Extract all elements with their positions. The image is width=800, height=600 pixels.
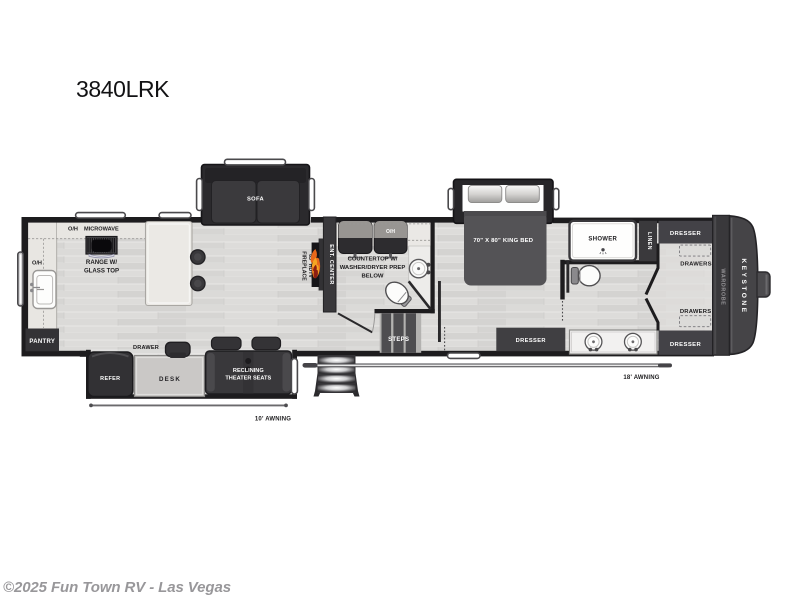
svg-text:SOFA: SOFA: [247, 197, 264, 203]
svg-text:COUNTERTOP W/: COUNTERTOP W/: [348, 257, 398, 263]
svg-text:DRESSER: DRESSER: [670, 342, 702, 348]
svg-text:O/H: O/H: [386, 229, 395, 235]
svg-text:STEPS: STEPS: [388, 337, 409, 343]
svg-text:DRAWERS: DRAWERS: [680, 262, 712, 268]
svg-text:WARDROBE: WARDROBE: [720, 268, 726, 305]
svg-text:GLASS TOP: GLASS TOP: [84, 268, 119, 275]
svg-text:LINEN: LINEN: [646, 232, 652, 250]
svg-text:KEYSTONE: KEYSTONE: [740, 258, 747, 314]
svg-text:BELOW: BELOW: [362, 273, 384, 279]
svg-text:DRESSER: DRESSER: [670, 231, 702, 237]
svg-text:FIREPLACE: FIREPLACE: [301, 251, 307, 281]
svg-text:RANGE W/: RANGE W/: [86, 259, 117, 266]
svg-text:70" X 80" KING BED: 70" X 80" KING BED: [473, 238, 533, 244]
svg-text:RECLINING: RECLINING: [233, 368, 264, 374]
svg-text:SHOWER: SHOWER: [588, 236, 617, 242]
svg-text:O/H: O/H: [68, 226, 78, 232]
svg-text:3840LRK: 3840LRK: [76, 76, 170, 102]
svg-text:O/H: O/H: [32, 261, 42, 267]
svg-text:WASHER/DRYER PREP: WASHER/DRYER PREP: [340, 265, 406, 271]
svg-text:REFER: REFER: [100, 376, 120, 382]
svg-text:THEATER SEATS: THEATER SEATS: [225, 375, 271, 381]
svg-text:ENT. CENTER: ENT. CENTER: [328, 244, 334, 284]
svg-text:MICROWAVE: MICROWAVE: [84, 226, 119, 232]
svg-text:DRAWER: DRAWER: [133, 345, 159, 351]
svg-text:DRESSER: DRESSER: [516, 338, 546, 344]
svg-text:DRAWERS: DRAWERS: [680, 309, 712, 315]
svg-text:PANTRY: PANTRY: [29, 339, 55, 345]
svg-text:18' AWNING: 18' AWNING: [623, 375, 659, 381]
svg-text:10' AWNING: 10' AWNING: [255, 417, 291, 423]
svg-text:©2025 Fun Town RV - Las Vegas: ©2025 Fun Town RV - Las Vegas: [3, 579, 231, 596]
svg-text:DESK: DESK: [159, 376, 181, 383]
